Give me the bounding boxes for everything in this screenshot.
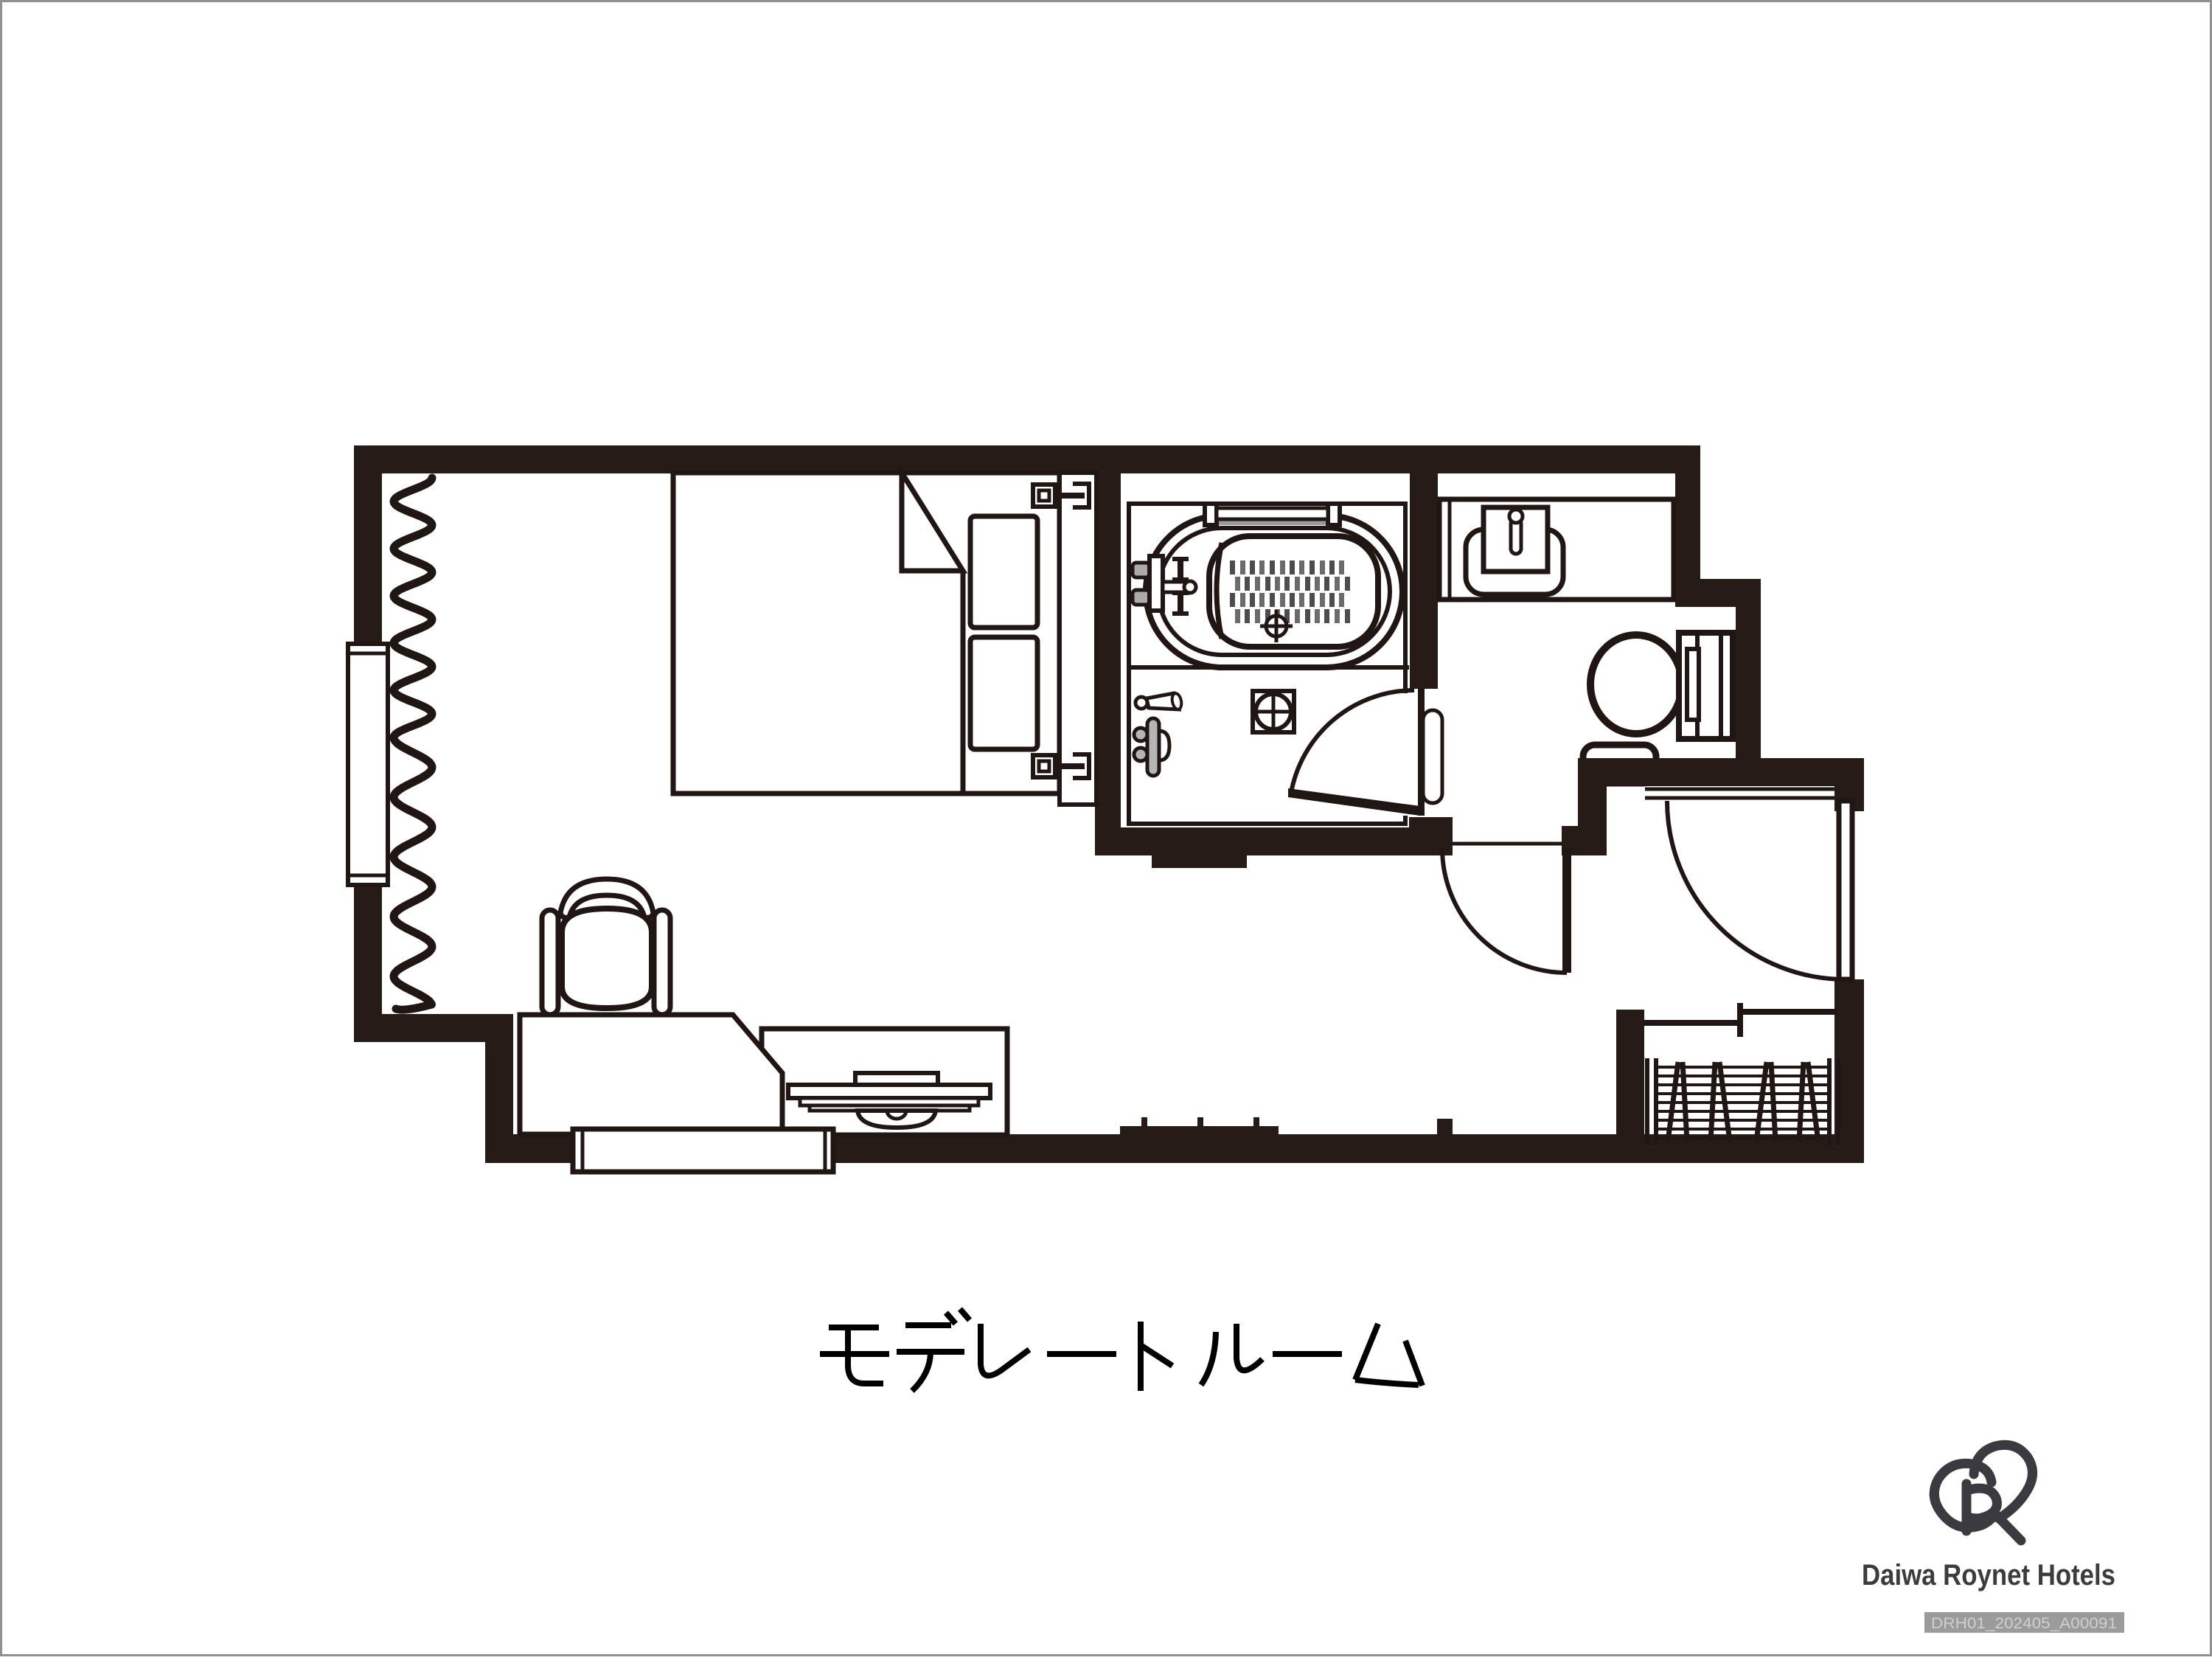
svg-text:DRH01_202405_A00091: DRH01_202405_A00091	[1931, 1615, 2117, 1632]
svg-text:Daiwa Roynet Hotels: Daiwa Roynet Hotels	[1862, 1559, 2115, 1591]
